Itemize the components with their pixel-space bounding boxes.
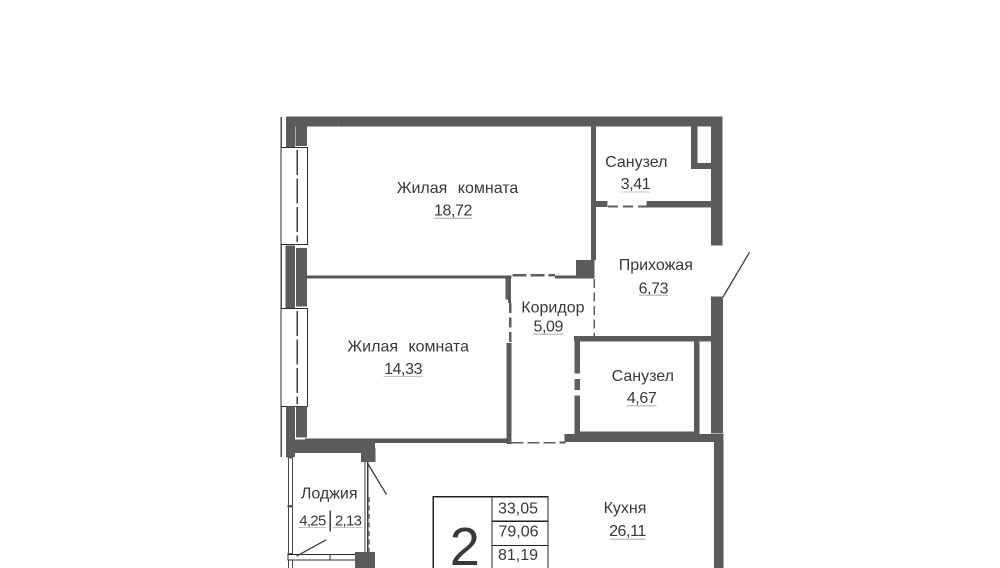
- svg-text:3,41: 3,41: [621, 176, 651, 193]
- svg-text:Жилая комната: Жилая комната: [397, 180, 519, 197]
- svg-text:2,13: 2,13: [335, 513, 362, 530]
- svg-text:33,05: 33,05: [498, 500, 538, 517]
- svg-text:Санузел: Санузел: [612, 368, 674, 385]
- svg-text:Лоджия: Лоджия: [301, 486, 358, 503]
- svg-text:26,11: 26,11: [609, 523, 646, 540]
- svg-text:Прихожая: Прихожая: [619, 257, 693, 274]
- svg-text:14,33: 14,33: [384, 361, 423, 378]
- svg-text:Санузел: Санузел: [605, 154, 667, 171]
- svg-text:4,67: 4,67: [627, 390, 657, 407]
- svg-text:Коридор: Коридор: [521, 300, 584, 317]
- svg-text:18,72: 18,72: [434, 203, 473, 220]
- svg-text:4,25: 4,25: [299, 513, 326, 530]
- svg-text:81,19: 81,19: [498, 547, 538, 564]
- svg-text:79,06: 79,06: [498, 524, 538, 541]
- svg-text:Кухня: Кухня: [604, 500, 647, 517]
- svg-text:5,09: 5,09: [534, 319, 564, 336]
- svg-text:Жилая комната: Жилая комната: [347, 338, 469, 355]
- svg-text:2: 2: [450, 517, 480, 568]
